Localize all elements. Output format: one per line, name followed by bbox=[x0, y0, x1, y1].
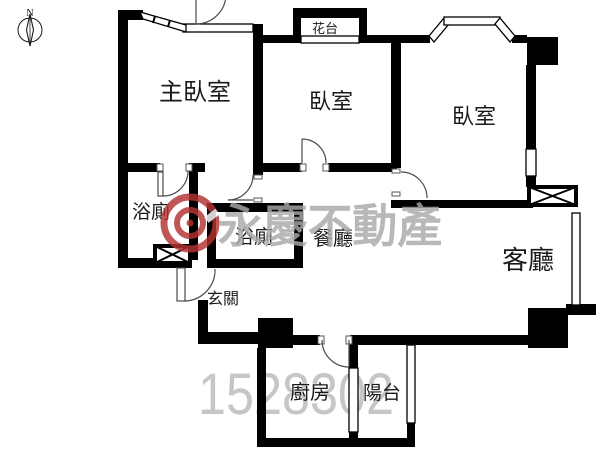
wall-segment bbox=[293, 8, 301, 43]
wall-segment bbox=[118, 10, 128, 268]
compass-north-label: N bbox=[26, 8, 33, 19]
wall-segment bbox=[263, 35, 293, 43]
bay-window-center bbox=[444, 17, 500, 25]
wall-segment bbox=[391, 35, 401, 168]
wall-segment bbox=[527, 37, 558, 65]
door-swing-arc bbox=[302, 139, 326, 163]
wall-segment bbox=[263, 163, 302, 172]
wall-segment bbox=[528, 308, 568, 348]
window bbox=[572, 213, 580, 305]
door-frame bbox=[157, 164, 163, 171]
compass-icon: N bbox=[18, 8, 42, 46]
wall-segment bbox=[349, 345, 358, 368]
door-swing-arc bbox=[163, 171, 188, 196]
wall-segment bbox=[407, 423, 415, 447]
sliding-door bbox=[349, 368, 358, 432]
front-door-leaf bbox=[177, 268, 185, 301]
wall-segment bbox=[566, 304, 596, 315]
door-leaf bbox=[158, 172, 163, 196]
bay-window-right bbox=[495, 18, 515, 42]
room-label-kitchen: 廚房 bbox=[290, 380, 330, 404]
wall-segment bbox=[350, 335, 528, 345]
door-frame bbox=[323, 164, 329, 171]
door-frame bbox=[300, 164, 306, 171]
floorplan-canvas: 1528302 bbox=[0, 0, 600, 450]
wall-segment bbox=[293, 335, 320, 345]
window bbox=[301, 36, 359, 43]
wall-segment bbox=[258, 318, 293, 348]
wall-segment bbox=[293, 8, 367, 18]
brand-watermark: 永慶不動產 bbox=[164, 197, 442, 252]
door-swing-arc bbox=[228, 175, 253, 200]
wall-segment bbox=[257, 438, 415, 447]
window bbox=[183, 24, 253, 32]
window-curved bbox=[140, 12, 186, 32]
door-swing-arc bbox=[401, 172, 427, 198]
room-label-bedroom-3: 臥室 bbox=[452, 104, 496, 129]
room-label-entryway: 玄關 bbox=[207, 290, 239, 308]
door-frame bbox=[254, 175, 262, 179]
floorplan-page: 1528302 bbox=[0, 0, 600, 450]
door-frame bbox=[392, 192, 400, 196]
wall-segment bbox=[349, 432, 358, 447]
wall-segment bbox=[328, 163, 397, 172]
door-frame bbox=[318, 336, 324, 344]
room-label-balcony: 陽台 bbox=[363, 382, 401, 404]
room-label-bedroom-2: 臥室 bbox=[309, 89, 353, 114]
wall-segment bbox=[207, 259, 303, 268]
wall-segment bbox=[118, 163, 160, 172]
door-frame bbox=[186, 164, 192, 171]
wall-segment bbox=[526, 65, 536, 150]
balcony-railing bbox=[407, 345, 415, 423]
wall-segment bbox=[257, 348, 266, 443]
wall-segment bbox=[253, 24, 263, 175]
wall-segment bbox=[198, 332, 262, 344]
brand-watermark-text: 永慶不動產 bbox=[218, 200, 442, 252]
wall-segment bbox=[359, 8, 367, 43]
door-swing-arc bbox=[196, 0, 226, 24]
room-label-master-bedroom: 主臥室 bbox=[159, 79, 231, 106]
window bbox=[526, 149, 536, 176]
room-label-living-room: 客廳 bbox=[502, 246, 554, 275]
room-label-flower-stand: 花台 bbox=[312, 21, 338, 36]
door-frame bbox=[392, 169, 400, 173]
